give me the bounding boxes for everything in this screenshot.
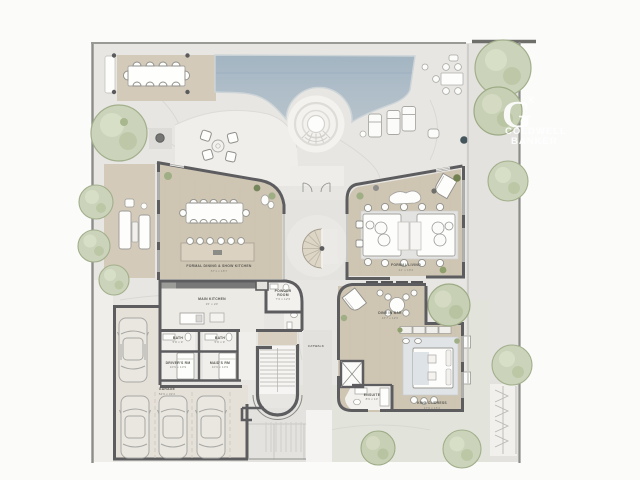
svg-text:57'1 x 18'7: 57'1 x 18'7 xyxy=(211,269,228,273)
svg-text:MAIN KITCHEN: MAIN KITCHEN xyxy=(198,297,226,301)
svg-text:5'8 x 9': 5'8 x 9' xyxy=(173,340,184,344)
svg-text:BANKER: BANKER xyxy=(511,136,558,147)
svg-text:DINE IN BAR: DINE IN BAR xyxy=(378,311,402,315)
svg-text:17'6 x 15'2: 17'6 x 15'2 xyxy=(424,406,441,410)
svg-text:16'7 x 12'6: 16'7 x 12'6 xyxy=(382,316,399,320)
svg-text:GARAGE: GARAGE xyxy=(159,387,176,391)
svg-text:10'6 x 10'9: 10'6 x 10'9 xyxy=(170,365,187,369)
svg-text:15' x 20': 15' x 20' xyxy=(206,302,219,306)
svg-text:5'8 x 9': 5'8 x 9' xyxy=(215,340,226,344)
svg-text:7'6 x 12'6: 7'6 x 12'6 xyxy=(276,297,291,301)
svg-text:KING CL/DRESS: KING CL/DRESS xyxy=(417,401,447,405)
svg-text:8'6 x 10': 8'6 x 10' xyxy=(366,397,379,401)
svg-text:10'6 x 10'9: 10'6 x 10'9 xyxy=(212,365,229,369)
svg-text:✳: ✳ xyxy=(526,93,536,107)
svg-text:41' x 19'2: 41' x 19'2 xyxy=(399,268,414,272)
svg-text:54'6 x 32'2: 54'6 x 32'2 xyxy=(159,392,176,396)
svg-text:FORMAL DINING & SHOW KITCHEN: FORMAL DINING & SHOW KITCHEN xyxy=(186,264,251,268)
svg-text:CATWALK: CATWALK xyxy=(308,344,325,348)
svg-text:FORMAL LIVING: FORMAL LIVING xyxy=(391,263,421,267)
